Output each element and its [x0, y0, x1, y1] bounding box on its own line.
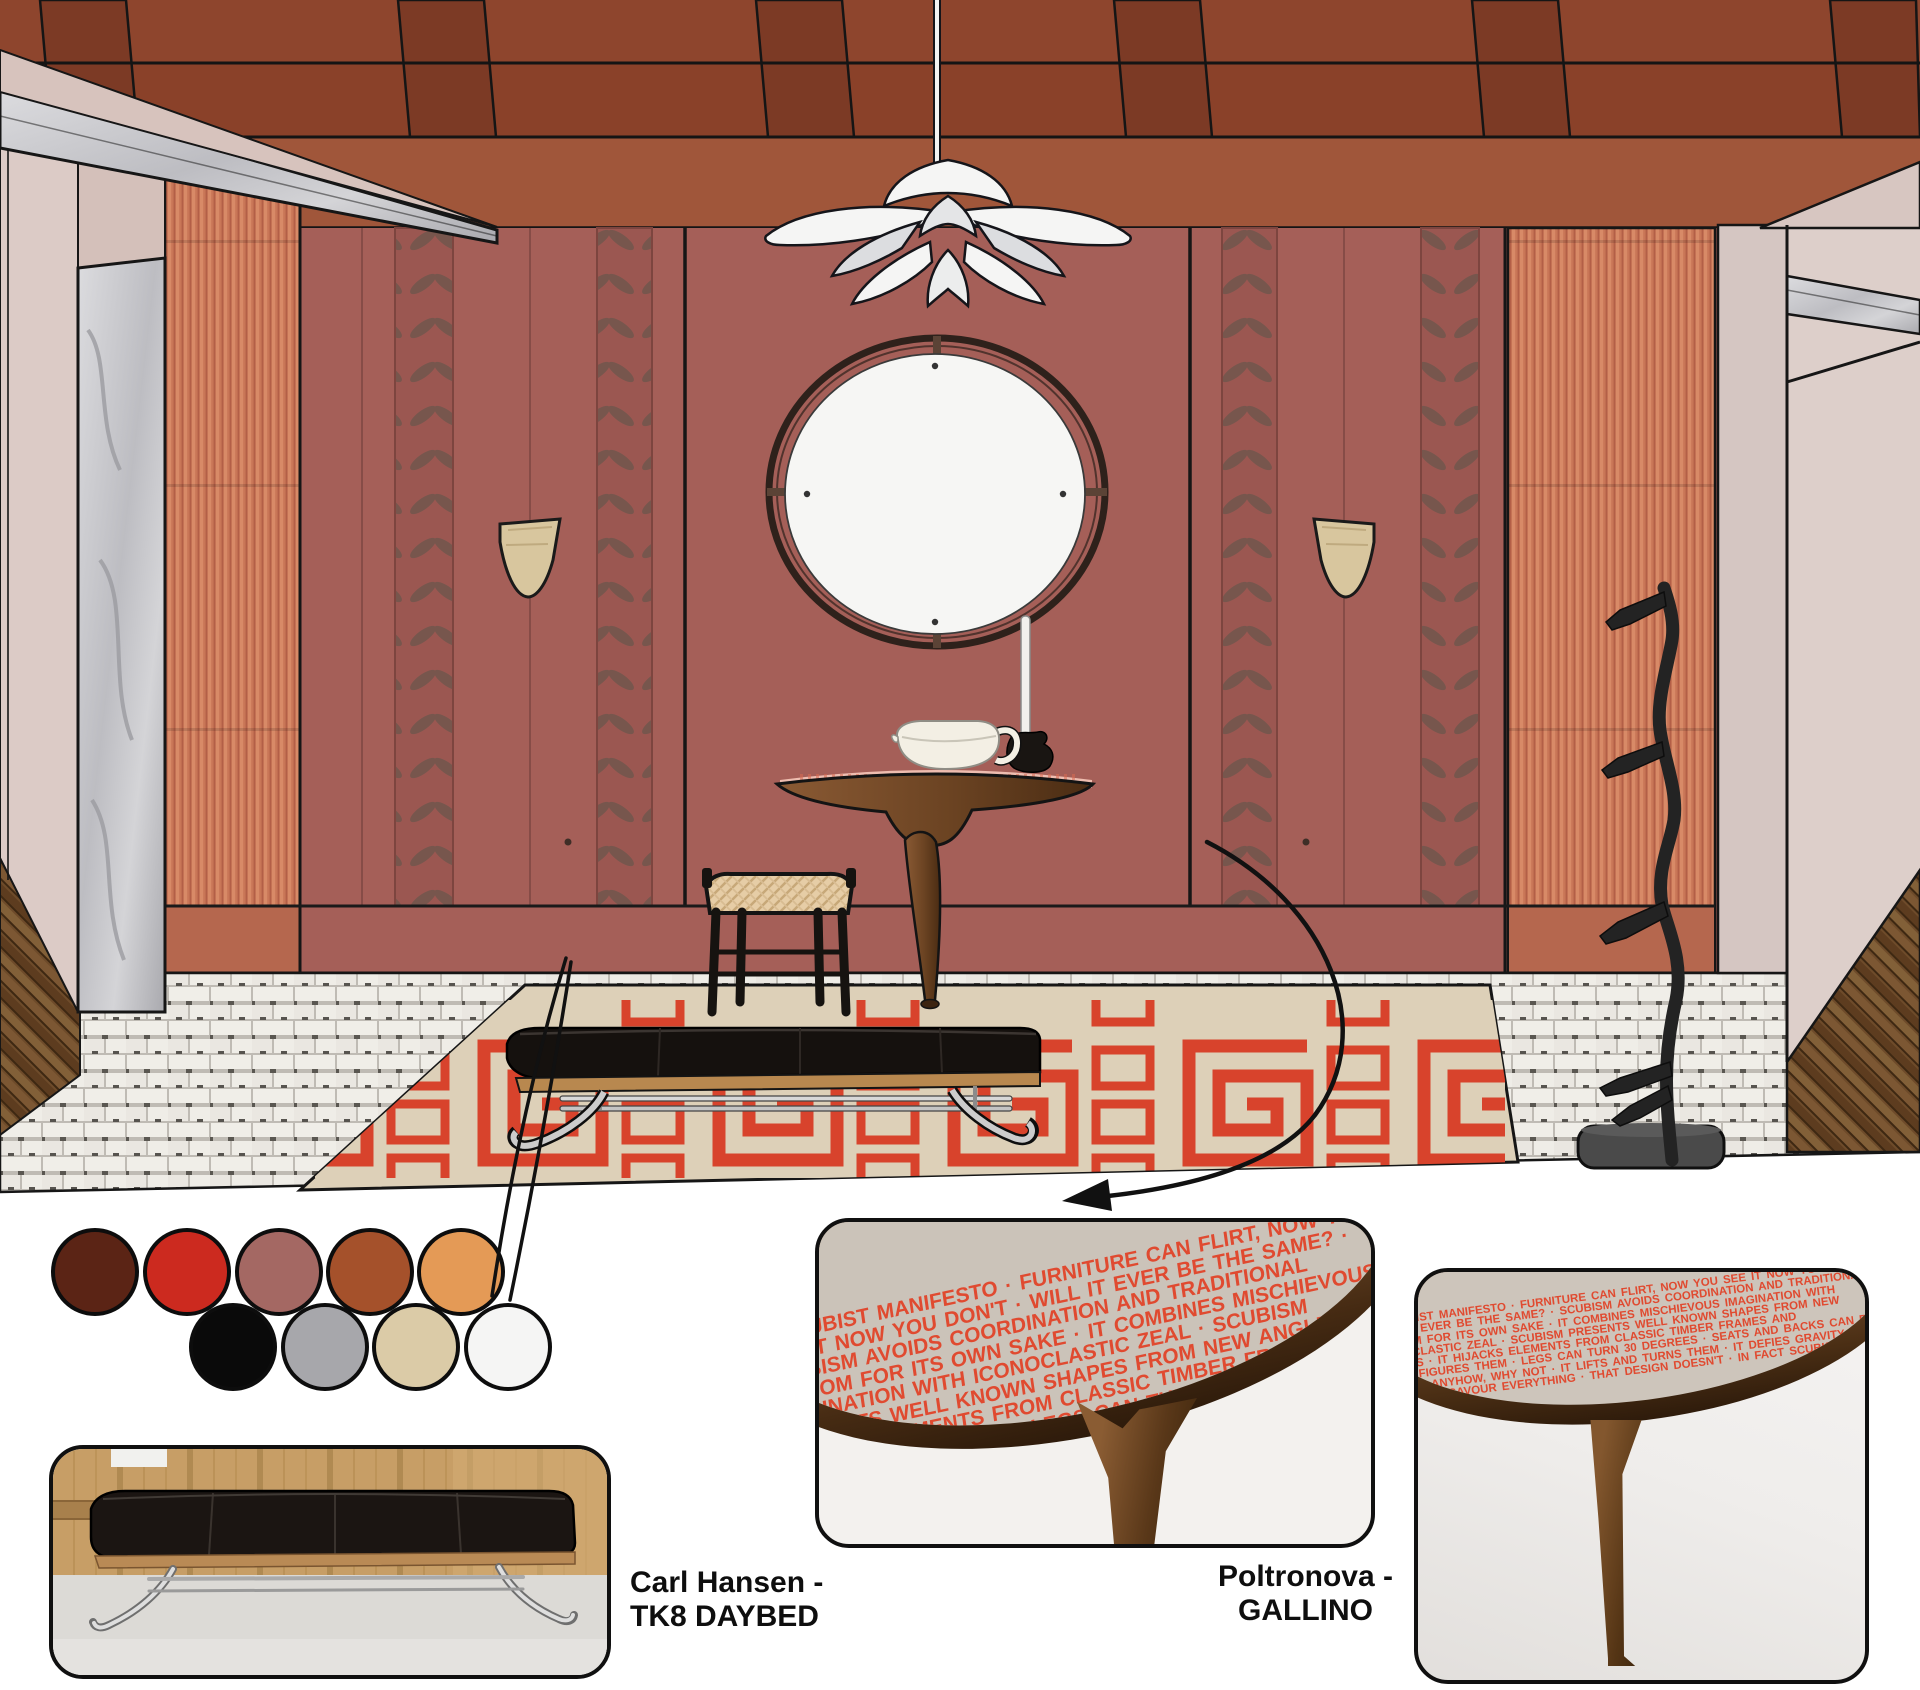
caption-daybed: Carl Hansen - TK8 DAYBED: [630, 1566, 823, 1634]
gallino-tabletop: A SCUBIST MANIFESTO · FURNITURE CAN FLIR…: [1414, 1268, 1869, 1599]
palette-swatch-sand: [372, 1303, 460, 1391]
caption-console-line2: GALLINO: [1198, 1594, 1413, 1628]
ribbed-wall-panel-left: [165, 152, 300, 973]
gallino-product-photo: A SCUBIST MANIFESTO · FURNITURE CAN FLIR…: [1414, 1268, 1869, 1684]
palette-swatch-ochre-orange: [417, 1228, 505, 1316]
caption-daybed-line1: Carl Hansen -: [630, 1566, 823, 1600]
caption-console-line1: Poltronova -: [1198, 1560, 1413, 1594]
room-svg: [0, 0, 1920, 1200]
palette-swatch-dusty-mauve: [235, 1228, 323, 1316]
palette-swatch-black: [189, 1303, 277, 1391]
palette-swatch-grey: [281, 1303, 369, 1391]
caption-daybed-line2: TK8 DAYBED: [630, 1600, 823, 1634]
caption-console: Poltronova - GALLINO: [1198, 1560, 1413, 1628]
room-rendering: [0, 0, 1920, 1200]
gallino-detail-photo: A SCUBIST MANIFESTO · FURNITURE CAN FLIR…: [815, 1218, 1375, 1548]
palette-swatch-red: [143, 1228, 231, 1316]
palette-swatch-dark-maroon: [51, 1228, 139, 1316]
tk8-daybed-photo: [49, 1445, 611, 1679]
ribbed-wall-panel-right: [1508, 228, 1715, 973]
marble-column: [78, 258, 165, 1012]
concept-board: { "annotations": { "daybed": { "line1": …: [0, 0, 1920, 1690]
palette-swatch-white: [464, 1303, 552, 1391]
gallino-tabletop-detail: A SCUBIST MANIFESTO · FURNITURE CAN FLIR…: [815, 1218, 1375, 1548]
palette-swatch-rust: [326, 1228, 414, 1316]
round-mirror: [767, 336, 1107, 648]
